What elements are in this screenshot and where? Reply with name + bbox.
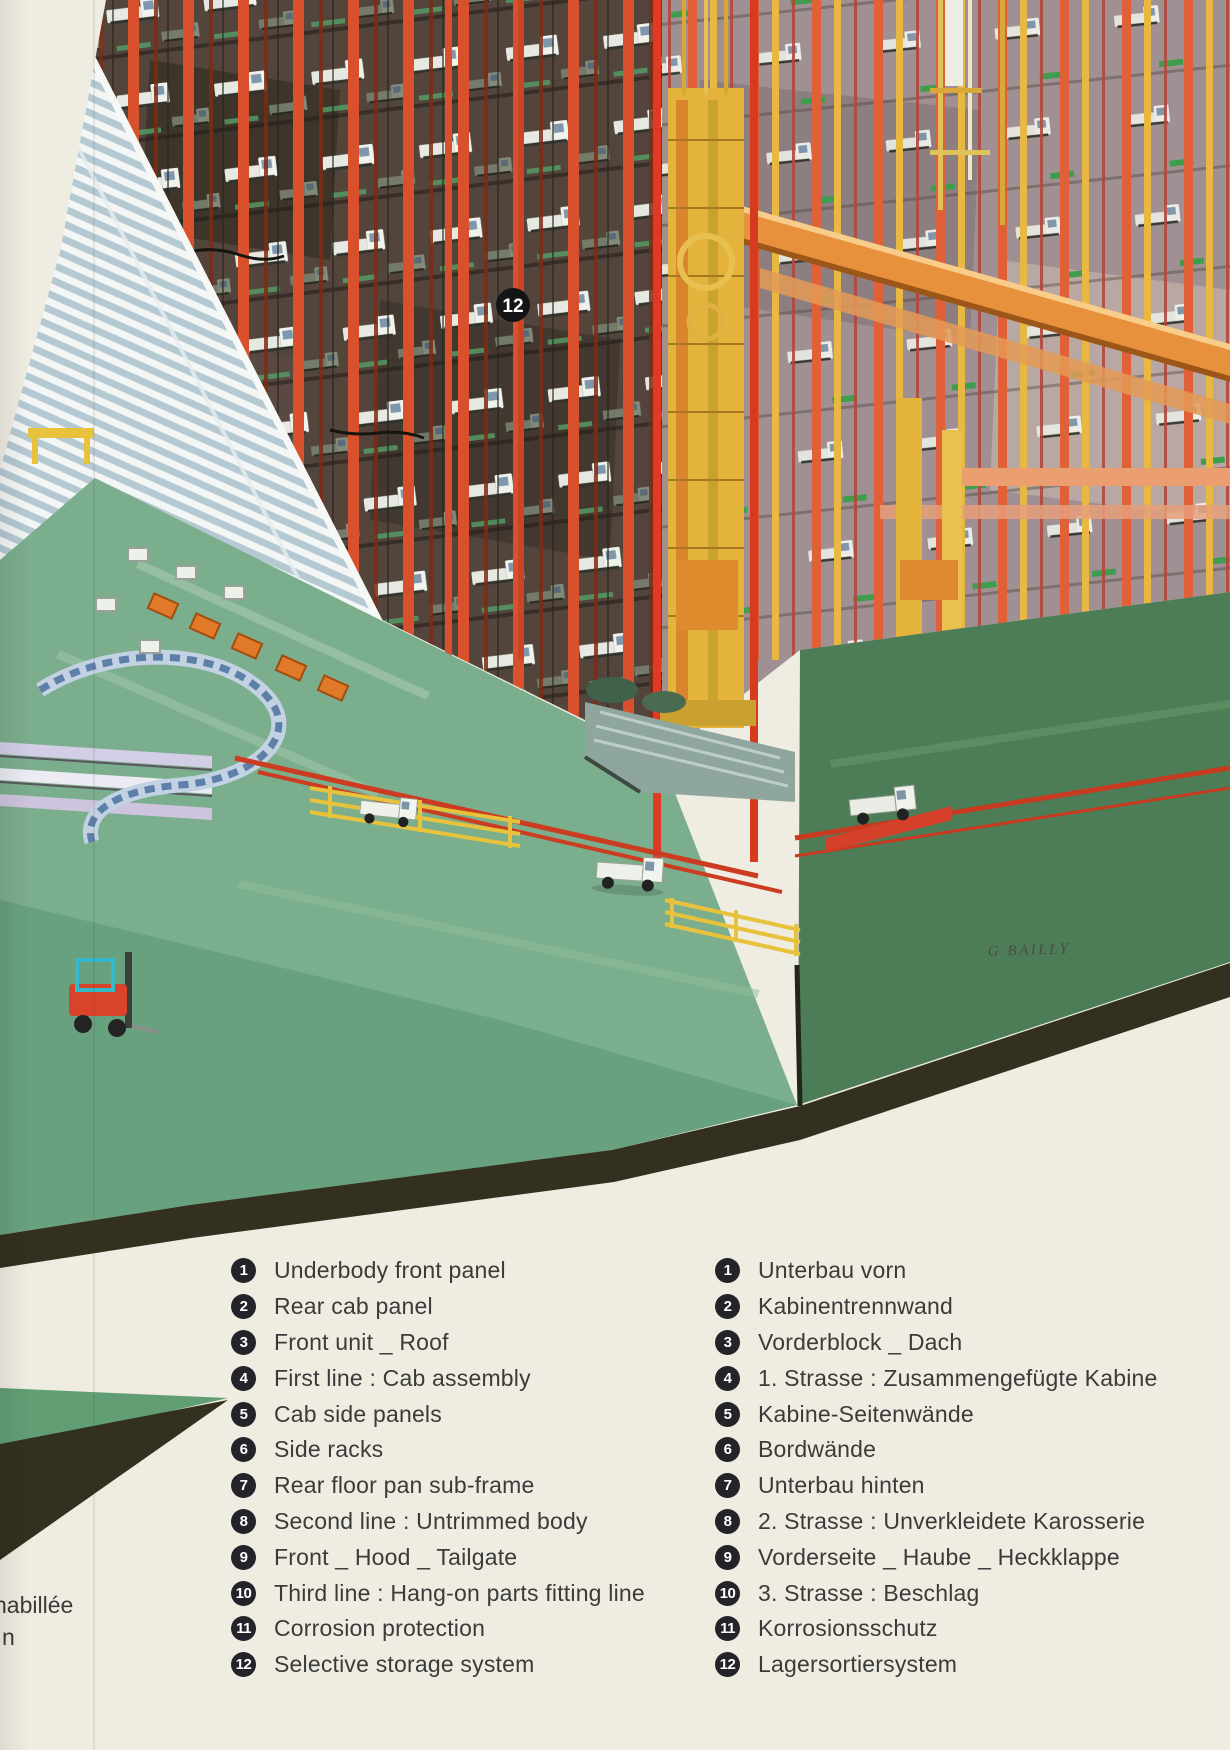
legend-item: 3Vorderblock _ Dach — [715, 1325, 1230, 1361]
legend-item-number-badge: 9 — [715, 1545, 740, 1570]
legend-item: 2Rear cab panel — [231, 1289, 791, 1325]
legend-item-number-badge: 2 — [715, 1294, 740, 1319]
legend-item-label: 3. Strasse : Beschlag — [758, 1580, 980, 1607]
legend-item: 11Korrosionsschutz — [715, 1611, 1230, 1647]
legend-item: 7Unterbau hinten — [715, 1468, 1230, 1504]
legend-item: 5Cab side panels — [231, 1396, 791, 1432]
legend-item-label: Front _ Hood _ Tailgate — [274, 1544, 517, 1571]
legend-item-number-badge: 6 — [231, 1437, 256, 1462]
legend-item-label: Second line : Untrimmed body — [274, 1508, 588, 1535]
legend-item-label: Front unit _ Roof — [274, 1329, 449, 1356]
legend-item-number-badge: 5 — [231, 1402, 256, 1427]
legend-item: 6Side racks — [231, 1432, 791, 1468]
legend-item-label: First line : Cab assembly — [274, 1365, 531, 1392]
legend-item: 7Rear floor pan sub-frame — [231, 1468, 791, 1504]
legend-item: 1Underbody front panel — [231, 1253, 791, 1289]
legend-item-number-badge: 10 — [231, 1581, 256, 1606]
legend-column-english: 1Underbody front panel 2Rear cab panel 3… — [231, 1253, 791, 1683]
legend-item-label: Corrosion protection — [274, 1615, 485, 1642]
page-edge-shadow — [0, 0, 30, 1750]
legend-item-number-badge: 2 — [231, 1294, 256, 1319]
legend-item-number-badge: 7 — [715, 1473, 740, 1498]
legend-item-label: 2. Strasse : Unverkleidete Karosserie — [758, 1508, 1145, 1535]
page-crease — [93, 0, 95, 1750]
legend-item: 2Kabinentrennwand — [715, 1289, 1230, 1325]
legend-item: 6Bordwände — [715, 1432, 1230, 1468]
legend-item: 11Corrosion protection — [231, 1611, 791, 1647]
legend-item-label: Kabinentrennwand — [758, 1293, 953, 1320]
legend-item-label: Rear cab panel — [274, 1293, 433, 1320]
legend-item-label: 1. Strasse : Zusammengefügte Kabine — [758, 1365, 1158, 1392]
legend-item-label: Cab side panels — [274, 1401, 442, 1428]
legend-item-number-badge: 1 — [231, 1258, 256, 1283]
legend-item: 3Front unit _ Roof — [231, 1325, 791, 1361]
legend-item: 9Vorderseite _ Haube _ Heckklappe — [715, 1539, 1230, 1575]
legend-item-number-badge: 12 — [715, 1652, 740, 1677]
legend-item-number-badge: 8 — [715, 1509, 740, 1534]
storage-system-callout-badge: 12 — [496, 288, 530, 322]
legend-item-number-badge: 6 — [715, 1437, 740, 1462]
callout-number: 12 — [502, 296, 523, 317]
legend-item-label: Third line : Hang-on parts fitting line — [274, 1580, 645, 1607]
legend-item-number-badge: 1 — [715, 1258, 740, 1283]
legend-item: 82. Strasse : Unverkleidete Karosserie — [715, 1504, 1230, 1540]
legend-item-label: Underbody front panel — [274, 1257, 506, 1284]
legend-item-number-badge: 12 — [231, 1652, 256, 1677]
legend-item: 1Unterbau vorn — [715, 1253, 1230, 1289]
legend-item-number-badge: 10 — [715, 1581, 740, 1606]
legend-item-label: Rear floor pan sub-frame — [274, 1472, 534, 1499]
legend-item-label: Selective storage system — [274, 1651, 534, 1678]
legend-item: 5Kabine-Seitenwände — [715, 1396, 1230, 1432]
legend-item-label: Unterbau hinten — [758, 1472, 925, 1499]
legend-item: 41. Strasse : Zusammengefügte Kabine — [715, 1360, 1230, 1396]
legend-item: 10Third line : Hang-on parts fitting lin… — [231, 1575, 791, 1611]
legend-item-label: Vorderseite _ Haube _ Heckklappe — [758, 1544, 1120, 1571]
legend-item-number-badge: 4 — [231, 1366, 256, 1391]
legend-item: 8Second line : Untrimmed body — [231, 1504, 791, 1540]
artist-signature: G BAILLY — [988, 941, 1071, 960]
legend-item-number-badge: 7 — [231, 1473, 256, 1498]
legend-item-label: Vorderblock _ Dach — [758, 1329, 962, 1356]
legend-item-label: Unterbau vorn — [758, 1257, 906, 1284]
legend-item-number-badge: 3 — [231, 1330, 256, 1355]
legend-item: 12Lagersortiersystem — [715, 1647, 1230, 1683]
legend-item-number-badge: 3 — [715, 1330, 740, 1355]
legend-item: 103. Strasse : Beschlag — [715, 1575, 1230, 1611]
legend-column-german: 1Unterbau vorn 2Kabinentrennwand 3Vorder… — [715, 1253, 1230, 1683]
legend-item-label: Kabine-Seitenwände — [758, 1401, 974, 1428]
legend-item-number-badge: 11 — [231, 1616, 256, 1641]
legend-item-label: Side racks — [274, 1436, 383, 1463]
legend-item-number-badge: 5 — [715, 1402, 740, 1427]
legend-item-number-badge: 4 — [715, 1366, 740, 1391]
legend-item-number-badge: 11 — [715, 1616, 740, 1641]
legend-item-label: Bordwände — [758, 1436, 876, 1463]
legend-item-label: Lagersortiersystem — [758, 1651, 957, 1678]
legend-item-number-badge: 9 — [231, 1545, 256, 1570]
legend-item: 12Selective storage system — [231, 1647, 791, 1683]
legend-item: 4First line : Cab assembly — [231, 1360, 791, 1396]
legend-item-number-badge: 8 — [231, 1509, 256, 1534]
legend-item-label: Korrosionsschutz — [758, 1615, 938, 1642]
legend-item: 9Front _ Hood _ Tailgate — [231, 1539, 791, 1575]
